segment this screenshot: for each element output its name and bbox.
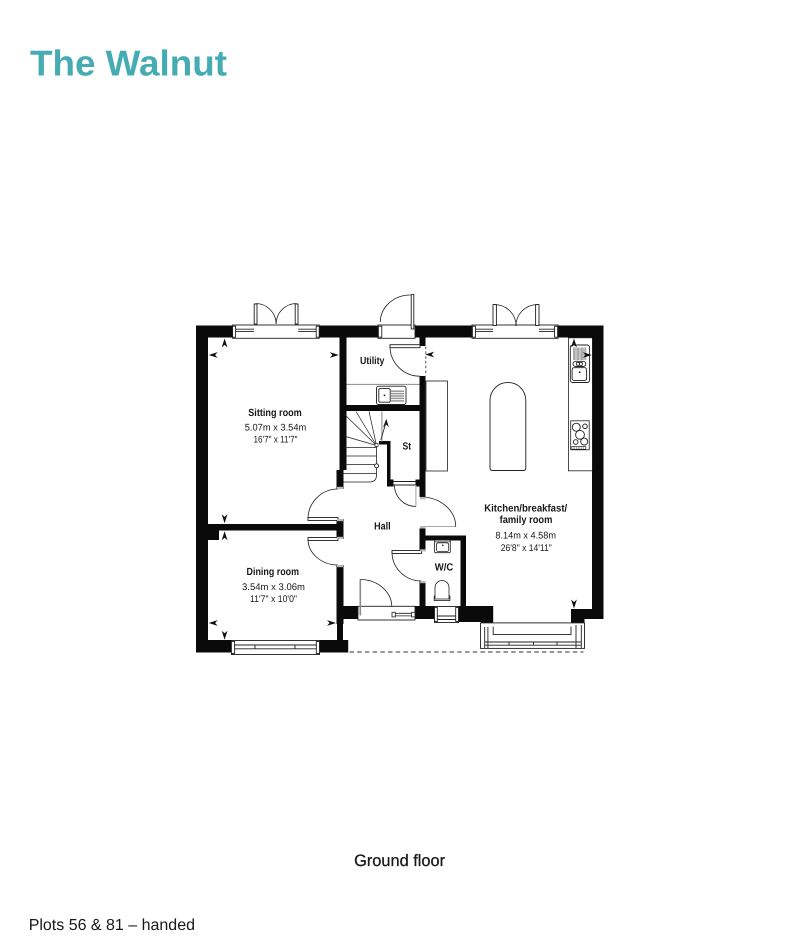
svg-text:Plots 56 & 81 – handed: Plots 56 & 81 – handed	[29, 917, 195, 934]
svg-text:Ground floor: Ground floor	[354, 852, 445, 870]
svg-text:5.07m x 3.54m: 5.07m x 3.54m	[245, 423, 307, 434]
svg-text:Dining room: Dining room	[247, 567, 300, 578]
svg-text:8.14m x 4.58m: 8.14m x 4.58m	[495, 530, 556, 541]
svg-text:The Walnut: The Walnut	[30, 43, 227, 84]
svg-text:Utility: Utility	[360, 356, 385, 367]
svg-text:Kitchen/breakfast/: Kitchen/breakfast/	[484, 504, 567, 515]
svg-text:St: St	[403, 442, 412, 453]
svg-text:26'8" x 14'11": 26'8" x 14'11"	[501, 543, 552, 554]
svg-text:family room: family room	[500, 515, 553, 526]
svg-text:3.54m x 3.06m: 3.54m x 3.06m	[242, 582, 305, 593]
svg-text:11'7" x 10'0": 11'7" x 10'0"	[250, 594, 297, 605]
svg-text:16'7" x 11'7": 16'7" x 11'7"	[254, 435, 298, 446]
svg-text:Sitting room: Sitting room	[248, 408, 302, 419]
svg-text:Hall: Hall	[374, 522, 391, 533]
svg-text:W/C: W/C	[435, 563, 454, 574]
